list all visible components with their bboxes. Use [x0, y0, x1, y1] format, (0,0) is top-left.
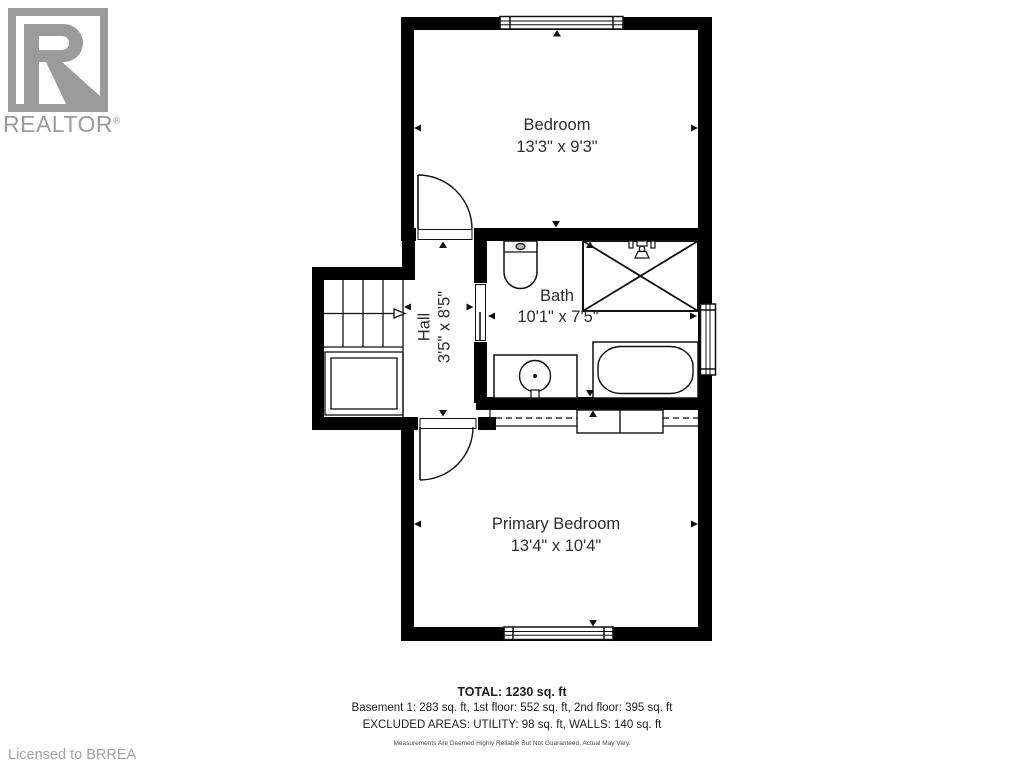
room-label-bath: Bath	[540, 287, 574, 305]
measure-arrow-icon	[404, 304, 411, 311]
measure-arrow-icon	[439, 410, 447, 417]
vanity-sink-icon	[494, 355, 577, 398]
toilet-icon	[504, 241, 537, 289]
total-area-text: TOTAL: 1230 sq. ft	[0, 684, 1024, 700]
measure-arrow-icon	[414, 521, 421, 528]
licensed-text: Licensed to BRREA	[8, 747, 136, 763]
measure-arrow-icon	[467, 304, 474, 311]
door-primary-bedroom-icon	[418, 416, 478, 480]
measure-arrow-icon	[691, 521, 698, 528]
room-dimensions-bath: 10'1" x 7'5"	[517, 308, 598, 326]
door-bedroom-icon	[416, 175, 474, 242]
shower-icon	[583, 241, 698, 311]
room-label-primary-bedroom: Primary Bedroom	[492, 515, 620, 533]
room-label-bedroom: Bedroom	[524, 116, 591, 134]
window-right-icon	[701, 304, 716, 375]
measure-arrow-icon	[439, 242, 447, 249]
room-dimensions-bedroom: 13'3" x 9'3"	[516, 138, 597, 156]
room-dimensions-hall: 3'5" x 8'5"	[436, 291, 454, 363]
window-top-icon	[500, 17, 623, 30]
measure-arrow-icon	[691, 125, 698, 132]
room-label-hall: Hall	[416, 313, 434, 341]
measure-arrow-icon	[488, 313, 495, 320]
floor-plan: Bedroom 13'3" x 9'3" Bath 10'1" x 7'5" H…	[0, 0, 1024, 768]
floor-areas-text: Basement 1: 283 sq. ft, 1st floor: 552 s…	[0, 700, 1024, 717]
bathtub-icon	[593, 342, 698, 398]
disclaimer-text: Measurements Are Deemed Highly Reliable …	[0, 740, 1024, 747]
area-summary: TOTAL: 1230 sq. ft Basement 1: 283 sq. f…	[0, 684, 1024, 747]
stairs-up	[324, 280, 405, 417]
door-bath-icon	[474, 283, 487, 342]
measure-arrow-icon	[414, 125, 421, 132]
window-bottom-icon	[504, 627, 613, 640]
measure-arrow-icon	[553, 30, 561, 37]
room-dimensions-primary-bedroom: 13'4" x 10'4"	[511, 537, 602, 555]
measure-arrow-icon	[690, 313, 697, 320]
measure-arrow-icon	[589, 620, 597, 627]
excluded-areas-text: EXCLUDED AREAS: UTILITY: 98 sq. ft, WALL…	[0, 717, 1024, 734]
measure-arrow-icon	[552, 221, 560, 228]
